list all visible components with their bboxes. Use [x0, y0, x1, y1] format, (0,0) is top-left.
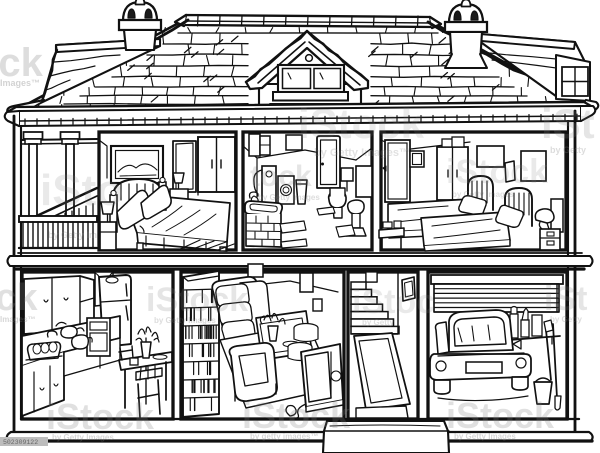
svg-text:iStock: iStock [446, 395, 555, 436]
svg-text:tock: tock [250, 160, 312, 193]
svg-text:iStock: iStock [146, 281, 248, 319]
svg-text:by Getty: by Getty [550, 315, 583, 324]
svg-text:iSt: iSt [541, 100, 595, 147]
svg-text:by Getty Images: by Getty Images [154, 316, 216, 325]
svg-text:by Getty Im: by Getty Im [48, 230, 97, 240]
svg-text:by Getty Images: by Getty Images [258, 193, 320, 202]
svg-text:iStock: iStock [298, 100, 425, 147]
svg-text:502309122: 502309122 [3, 439, 38, 446]
svg-text:Images™: Images™ [0, 315, 36, 324]
svg-text:by getty images™: by getty images™ [250, 432, 318, 441]
svg-text:Images™: Images™ [0, 78, 40, 88]
svg-text:by Getty Images: by Getty Images [52, 433, 114, 442]
svg-text:iSto: iSto [40, 166, 123, 215]
svg-text:iStock: iStock [242, 395, 351, 436]
svg-text:by Getty: by Getty [362, 318, 395, 327]
svg-text:by Getty Images: by Getty Images [454, 432, 516, 441]
svg-text:iStock: iStock [46, 396, 155, 437]
svg-text:by Getty Images: by Getty Images [452, 190, 514, 199]
svg-text:iStock: iStock [446, 153, 548, 191]
svg-text:iSt: iSt [544, 280, 587, 318]
svg-text:ock: ock [0, 277, 38, 319]
svg-text:by Getty Images™: by Getty Images™ [314, 147, 410, 159]
svg-text:iStoc: iStoc [352, 283, 435, 321]
svg-text:by Getty: by Getty [550, 145, 586, 155]
